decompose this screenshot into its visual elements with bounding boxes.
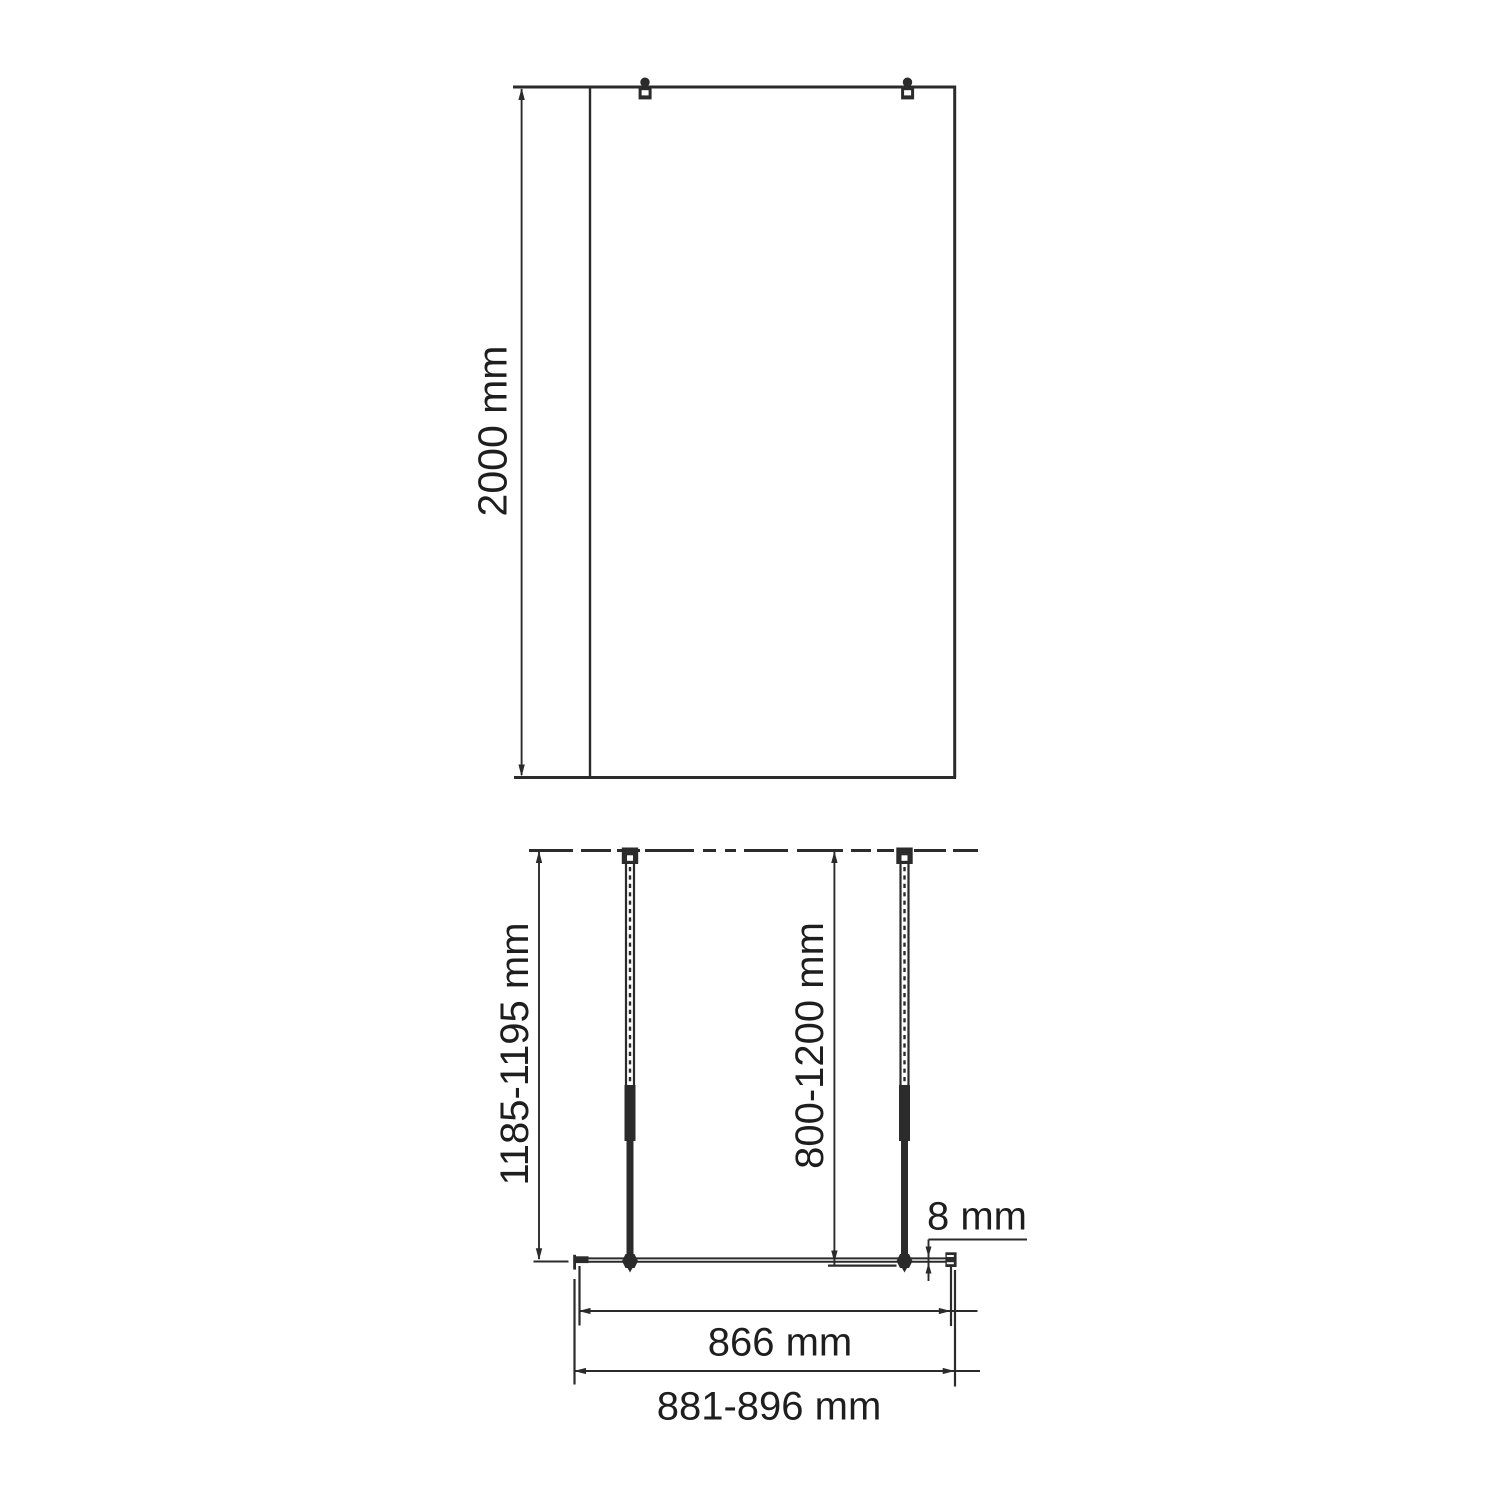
svg-text:881-896 mm: 881-896 mm [657,1385,882,1429]
svg-text:800-1200 mm: 800-1200 mm [788,922,832,1169]
svg-text:866 mm: 866 mm [708,1321,853,1365]
svg-text:2000 mm: 2000 mm [470,346,516,517]
svg-text:8 mm: 8 mm [927,1195,1027,1239]
svg-text:1185-1195 mm: 1185-1195 mm [493,922,537,1185]
